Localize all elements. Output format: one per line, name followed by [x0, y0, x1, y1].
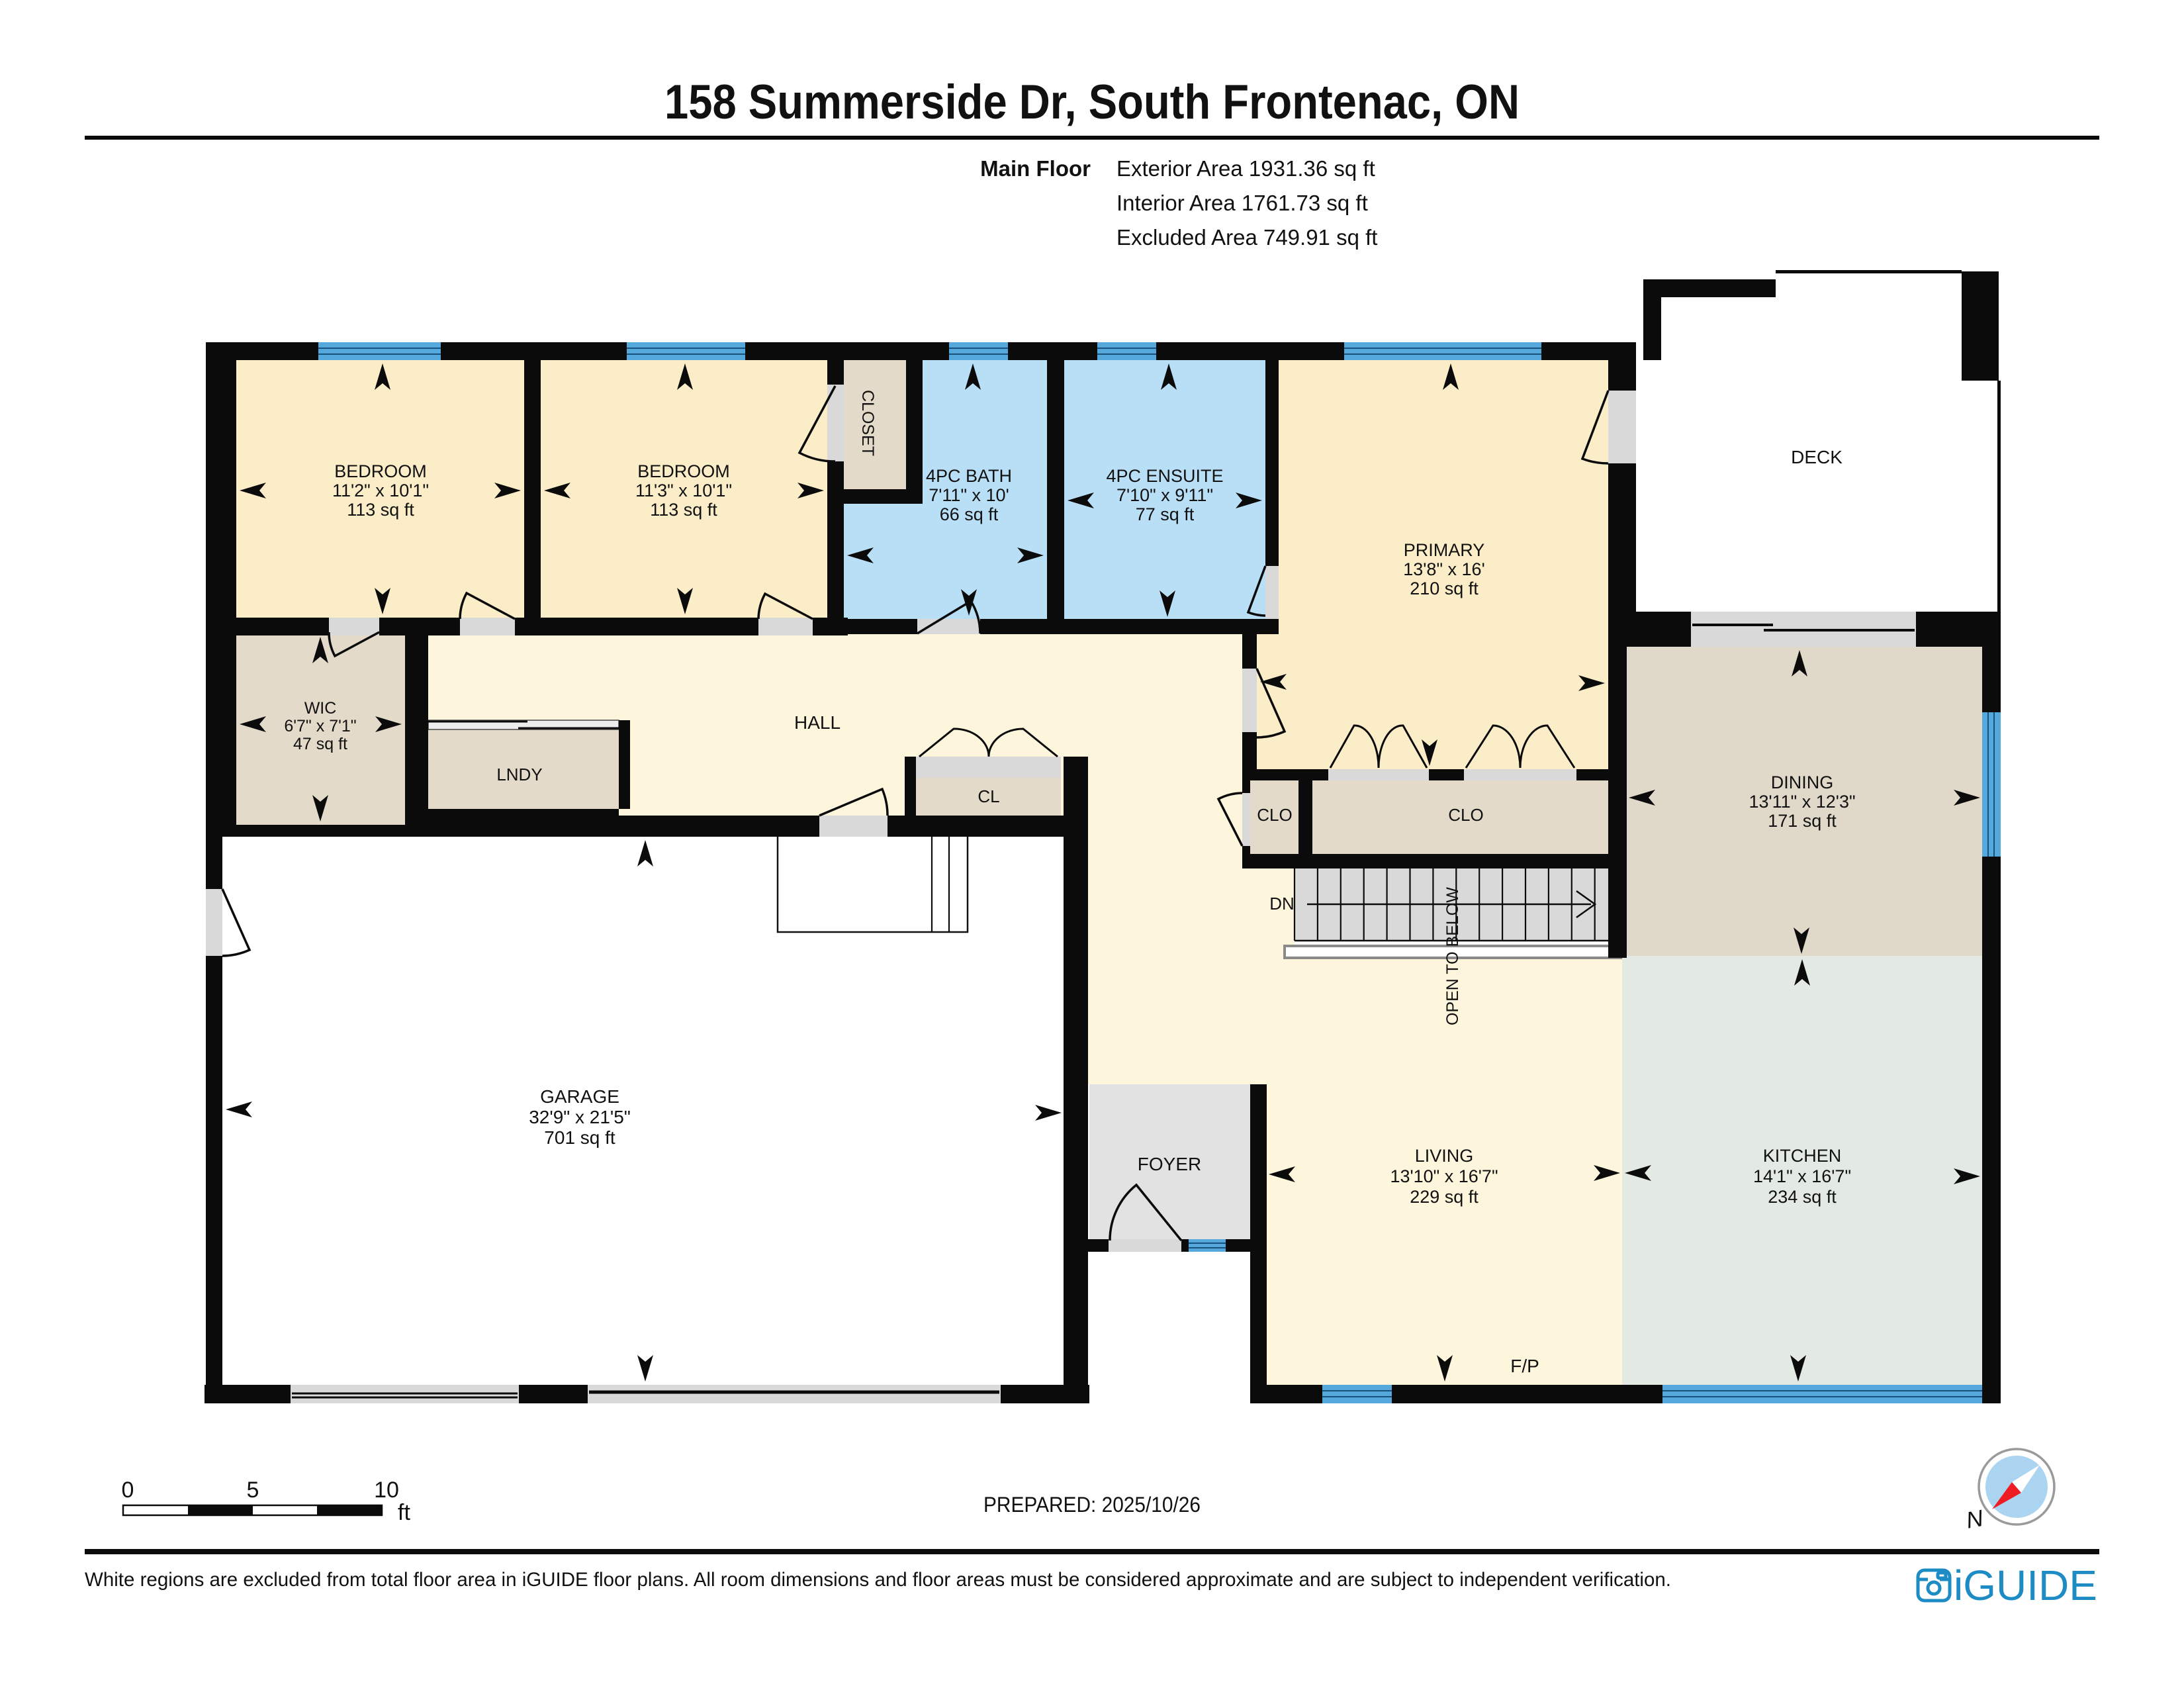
svg-text:113 sq ft: 113 sq ft [347, 500, 414, 520]
svg-text:Main Floor: Main Floor [980, 156, 1091, 181]
svg-text:171 sq ft: 171 sq ft [1768, 811, 1837, 831]
svg-text:11'3" x 10'1": 11'3" x 10'1" [635, 481, 732, 500]
svg-text:LIVING: LIVING [1415, 1146, 1474, 1166]
svg-text:PREPARED: 2025/10/26: PREPARED: 2025/10/26 [983, 1493, 1201, 1517]
svg-text:CL: CL [978, 786, 999, 806]
svg-text:Exterior Area 1931.36 sq ft: Exterior Area 1931.36 sq ft [1116, 156, 1375, 181]
svg-text:158 Summerside Dr, South Front: 158 Summerside Dr, South Frontenac, ON [664, 75, 1520, 129]
svg-text:77 sq ft: 77 sq ft [1136, 504, 1195, 524]
svg-text:210 sq ft: 210 sq ft [1410, 579, 1479, 598]
svg-text:13'11" x 12'3": 13'11" x 12'3" [1749, 792, 1855, 812]
svg-text:7'10" x 9'11": 7'10" x 9'11" [1116, 485, 1213, 505]
svg-text:113 sq ft: 113 sq ft [650, 500, 717, 520]
svg-text:PRIMARY: PRIMARY [1404, 540, 1485, 560]
svg-text:White regions are excluded fro: White regions are excluded from total fl… [85, 1569, 1671, 1591]
svg-text:4PC BATH: 4PC BATH [926, 466, 1012, 486]
svg-text:14'1" x 16'7": 14'1" x 16'7" [1753, 1166, 1851, 1186]
svg-text:47 sq ft: 47 sq ft [293, 735, 347, 753]
svg-text:LNDY: LNDY [496, 765, 542, 784]
svg-text:32'9" x 21'5": 32'9" x 21'5" [529, 1107, 631, 1127]
svg-text:701 sq ft: 701 sq ft [544, 1127, 615, 1148]
svg-text:11'2" x 10'1": 11'2" x 10'1" [332, 481, 429, 500]
svg-text:OPEN TO BELOW: OPEN TO BELOW [1443, 887, 1462, 1025]
svg-text:iGUIDE: iGUIDE [1954, 1562, 2097, 1609]
svg-text:66 sq ft: 66 sq ft [940, 504, 999, 524]
svg-text:BEDROOM: BEDROOM [637, 461, 730, 481]
svg-text:5: 5 [247, 1477, 259, 1503]
svg-text:CLO: CLO [1448, 805, 1483, 825]
svg-text:229 sq ft: 229 sq ft [1410, 1187, 1479, 1207]
svg-text:WIC: WIC [304, 699, 337, 718]
svg-text:CLOSET: CLOSET [858, 390, 877, 456]
svg-text:10: 10 [374, 1477, 399, 1503]
svg-text:ft: ft [398, 1500, 410, 1525]
svg-text:13'10" x 16'7": 13'10" x 16'7" [1390, 1166, 1498, 1186]
svg-text:DECK: DECK [1791, 447, 1843, 467]
svg-text:13'8" x 16': 13'8" x 16' [1403, 559, 1484, 579]
svg-text:Interior Area 1761.73 sq ft: Interior Area 1761.73 sq ft [1116, 191, 1368, 215]
svg-text:4PC ENSUITE: 4PC ENSUITE [1106, 466, 1223, 486]
svg-text:Excluded Area 749.91 sq ft: Excluded Area 749.91 sq ft [1116, 225, 1377, 250]
svg-text:HALL: HALL [794, 712, 841, 733]
svg-text:234 sq ft: 234 sq ft [1768, 1187, 1837, 1207]
svg-text:DN: DN [1269, 894, 1295, 914]
svg-text:7'11" x 10': 7'11" x 10' [929, 485, 1009, 505]
svg-text:F/P: F/P [1510, 1356, 1539, 1376]
svg-text:GARAGE: GARAGE [540, 1086, 619, 1107]
svg-text:FOYER: FOYER [1138, 1154, 1201, 1174]
svg-text:0: 0 [122, 1477, 134, 1503]
svg-text:DINING: DINING [1771, 773, 1834, 792]
svg-text:BEDROOM: BEDROOM [334, 461, 427, 481]
svg-text:6'7" x 7'1": 6'7" x 7'1" [284, 717, 356, 735]
svg-text:KITCHEN: KITCHEN [1763, 1146, 1842, 1166]
svg-text:CLO: CLO [1257, 805, 1292, 825]
